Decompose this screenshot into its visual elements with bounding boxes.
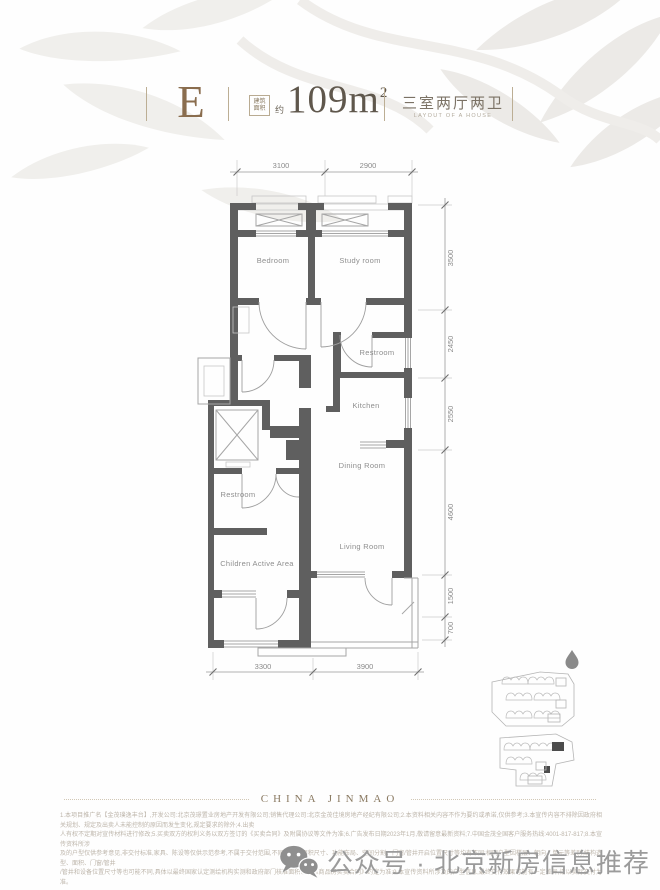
watermark-text: 公众号 · 北京新房信息推荐 [327,843,650,880]
disclaimer-line-1: 1.本项目推广名【金茂璞逸丰台】,开发公司:北京茂璟置业房地产开发有限公司;销售… [60,812,602,831]
floorplan-page: E 建筑 面积 约 109m2 三室两厅两卫 LAYOUT OF A HOUSE [0,0,660,890]
dim-top-1: 2900 [360,161,377,170]
room-label-dining: Dining Room [339,461,386,470]
floorplan-drawing: Bedroom Study room Restroom Kitchen Dini… [0,0,660,890]
wechat-icon [278,844,320,880]
dim-bottom-1: 3900 [357,662,374,671]
room-label-restroom-upper: Restroom [360,348,395,357]
dim-right-3: 4600 [446,504,455,521]
watermark: 公众号 · 北京新房信息推荐 [278,843,650,880]
brand-rule-left [64,799,249,800]
dim-right-1: 2450 [446,336,455,353]
room-label-study: Study room [339,256,380,265]
dim-right-5: 700 [446,622,455,635]
walls [208,203,412,648]
room-label-bedroom: Bedroom [257,256,290,265]
brand-rule-right [411,799,596,800]
brand-name: CHINA JINMAO [261,793,400,805]
dim-top-0: 3100 [273,161,290,170]
north-droplet-icon [566,650,579,669]
room-label-living: Living Room [340,542,385,551]
site-plan [492,650,579,786]
room-label-kitchen: Kitchen [352,401,379,410]
highlighted-building [552,742,564,751]
room-label-restroom-lower: Restroom [221,490,256,499]
room-label-children: Children Active Area [220,559,294,568]
brand-row: CHINA JINMAO [64,793,596,805]
dim-right-4: 1500 [446,588,455,605]
dim-right-0: 3500 [446,250,455,267]
windows [222,214,412,647]
dim-right-2: 2550 [446,406,455,423]
dim-bottom-0: 3300 [255,662,272,671]
top-ledge-outline [238,196,412,210]
